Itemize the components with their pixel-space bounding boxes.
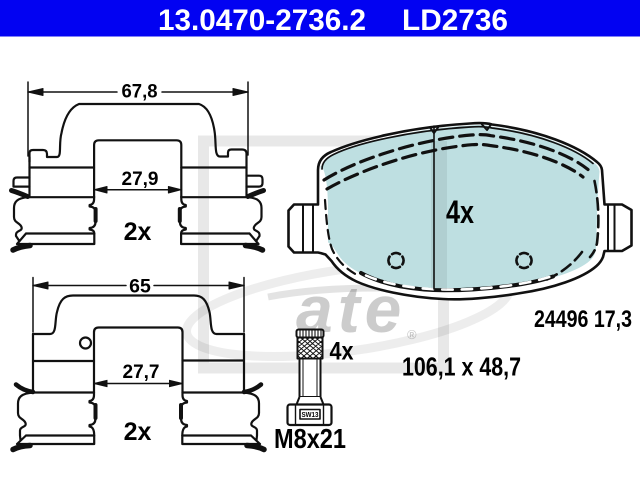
svg-text:27,9: 27,9: [122, 168, 159, 190]
svg-text:24496 17,3: 24496 17,3: [534, 306, 632, 333]
svg-text:13.0470-2736.2: 13.0470-2736.2: [158, 4, 366, 37]
svg-text:M8x21: M8x21: [274, 423, 346, 454]
svg-text:2x: 2x: [124, 218, 152, 246]
svg-text:4x: 4x: [330, 338, 354, 366]
svg-text:4x: 4x: [446, 194, 474, 230]
svg-text:65: 65: [129, 276, 151, 298]
svg-text:SW13: SW13: [302, 410, 319, 419]
svg-text:LD2736: LD2736: [402, 4, 508, 37]
svg-text:®: ®: [407, 327, 417, 342]
svg-text:67,8: 67,8: [122, 81, 158, 103]
svg-text:2x: 2x: [124, 418, 152, 446]
svg-text:106,1 x 48,7: 106,1 x 48,7: [402, 352, 521, 382]
svg-text:27,7: 27,7: [123, 361, 160, 383]
